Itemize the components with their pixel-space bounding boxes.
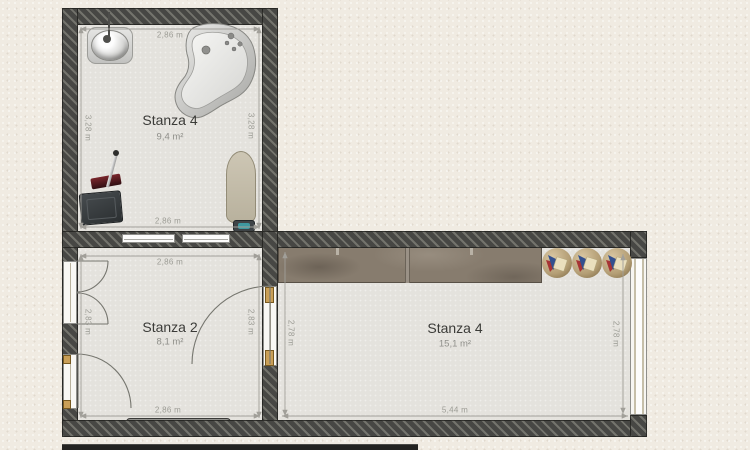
plan-overlay [0,0,750,450]
round-chair[interactable] [542,248,572,278]
round-chair[interactable] [572,248,602,278]
dim-stanza2-top: 2,86 m [157,258,183,267]
bathtub-drain [202,46,210,54]
round-chair[interactable] [602,248,632,278]
dim-stanza2-right: 2,83 m [247,309,256,335]
dim-bathroom-right: 3,28 m [247,113,256,139]
partial-wall-bottom[interactable] [62,444,418,450]
dim-bathroom-left: 3,28 m [84,115,93,141]
dim-bathroom-bottom: 2,86 m [155,217,181,226]
dim-living-right: 2,78 m [612,321,621,347]
room-area-bathroom: 9,4 m² [157,132,184,143]
room-area-living: 15,1 m² [439,339,471,350]
dim-bathroom-top: 2,86 m [157,31,183,40]
bathtub[interactable] [175,24,256,118]
dim-living-bottom: 5,44 m [442,406,468,415]
room-title-stanza2: Stanza 2 [142,319,197,335]
floor-plan-canvas[interactable]: Stanza 4 9,4 m² Stanza 2 8,1 m² Stanza 4… [0,0,750,450]
dim-living-left: 2,78 m [287,320,296,346]
dim-stanza2-left: 2,83 m [84,309,93,335]
room-title-bathroom: Stanza 4 [142,112,197,128]
room-title-living: Stanza 4 [427,320,482,336]
room-area-stanza2: 8,1 m² [157,337,184,348]
dim-stanza2-bottom: 2,86 m [155,406,181,415]
